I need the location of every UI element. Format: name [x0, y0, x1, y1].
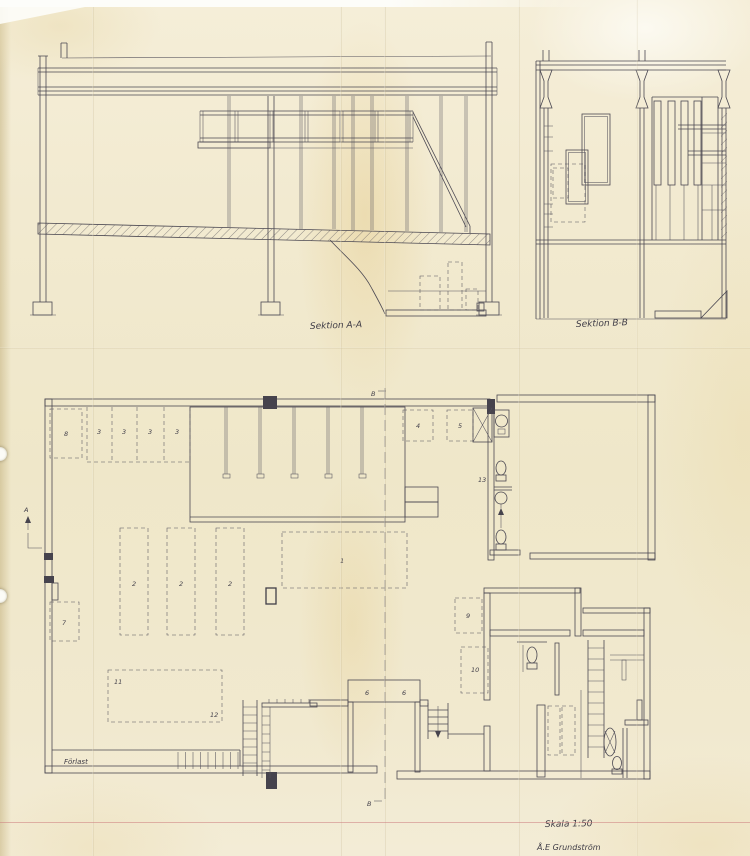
section-aa-drawing: Sektion A-A [30, 42, 502, 332]
room-number-3: 3 [122, 428, 126, 436]
section-bb-drawing: Sektion B-B [536, 50, 730, 330]
room-number-8: 8 [64, 430, 68, 438]
room-number-12: 12 [210, 711, 218, 719]
scanned-architectural-drawing: Sektion A-A [0, 0, 750, 856]
wall-posts [228, 96, 467, 232]
section-arrow [25, 516, 31, 523]
ladder-right [588, 640, 604, 758]
section-marker-b-top: B [371, 390, 376, 398]
room-number-2: 2 [179, 580, 183, 588]
stair-down [428, 703, 484, 739]
room-number-1: 1 [340, 557, 344, 565]
room-number-3: 3 [175, 428, 179, 436]
floor-plan-drawing: 8 3 3 3 3 4 5 [23, 388, 655, 808]
top-beam [536, 61, 726, 70]
flow-arrow [498, 508, 504, 515]
room-number-7: 7 [62, 619, 67, 627]
entrance-vestibule: 6 6 [310, 680, 428, 772]
columns [30, 42, 502, 315]
floor-slab [38, 223, 490, 245]
floor-line [536, 240, 726, 244]
section-marker-b-bottom: B [367, 800, 372, 808]
room-number-10: 10 [471, 666, 479, 674]
room-number-9: 9 [466, 612, 470, 620]
storage-bays-top: 8 3 3 3 3 [50, 407, 190, 462]
outer-walls [44, 395, 655, 789]
basement [330, 240, 486, 316]
title-notes: Skala 1:50 Å.E Grundström [536, 819, 601, 852]
section-bb-label: Sektion B-B [576, 318, 628, 330]
room-number-2: 2 [132, 580, 136, 588]
toilet-icon [613, 757, 622, 770]
window-frame [544, 114, 610, 227]
scale-note: Skala 1:50 [545, 819, 593, 830]
toilet-icon [496, 461, 506, 475]
sink-icon [495, 492, 507, 504]
room-number-11: 11 [114, 678, 122, 686]
room-number-3: 3 [97, 428, 101, 436]
central-hall [190, 407, 438, 522]
room-number-6: 6 [402, 689, 406, 697]
room-number-6: 6 [365, 689, 369, 697]
room-number-3: 3 [148, 428, 152, 436]
stair-arrow [435, 731, 441, 738]
room-number-4: 4 [416, 422, 420, 430]
sanitary-corridor: 13 [478, 410, 520, 555]
section-marker-a: A [23, 506, 28, 514]
signature-note: Å.E Grundström [536, 841, 601, 852]
mezzanine-stair [413, 112, 470, 233]
loading-strip-label: Förlast [64, 758, 88, 766]
roof-beams [38, 43, 497, 95]
room-number-5: 5 [458, 422, 462, 430]
slatted-panel [652, 97, 726, 240]
drawing-canvas: Sektion A-A [0, 0, 750, 856]
toilet-icon [496, 530, 506, 544]
bays-4-5: 4 5 [403, 408, 492, 442]
section-cut-line-b: B B [367, 388, 386, 808]
room-number-13: 13 [478, 476, 486, 484]
hatched-wall [721, 112, 727, 238]
toilet-icon [527, 647, 537, 663]
sink-icon [496, 415, 508, 427]
section-cut-marker-a: A [23, 506, 42, 548]
locker-room [517, 640, 648, 778]
room-number-2: 2 [228, 580, 232, 588]
section-aa-label: Sektion A-A [310, 320, 362, 332]
basement-stair [655, 291, 727, 318]
equipment-footprints: 2 2 2 1 7 11 12 9 10 [50, 528, 488, 722]
